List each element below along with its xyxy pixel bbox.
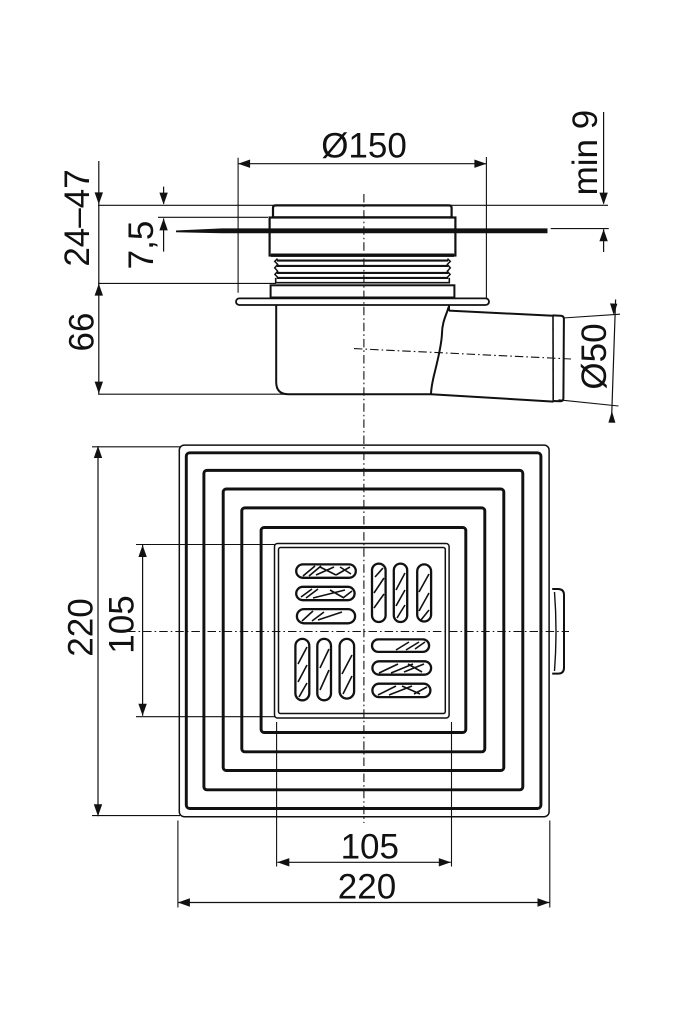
svg-text:min 9: min 9 <box>566 110 605 196</box>
svg-text:7,5: 7,5 <box>122 221 161 270</box>
svg-text:24–47: 24–47 <box>58 169 97 266</box>
svg-text:66: 66 <box>63 313 102 352</box>
svg-text:105: 105 <box>341 828 399 867</box>
svg-text:105: 105 <box>103 595 142 653</box>
svg-text:220: 220 <box>338 868 396 907</box>
svg-text:Ø50: Ø50 <box>575 323 614 389</box>
svg-text:Ø150: Ø150 <box>321 127 407 166</box>
svg-text:220: 220 <box>62 598 101 656</box>
